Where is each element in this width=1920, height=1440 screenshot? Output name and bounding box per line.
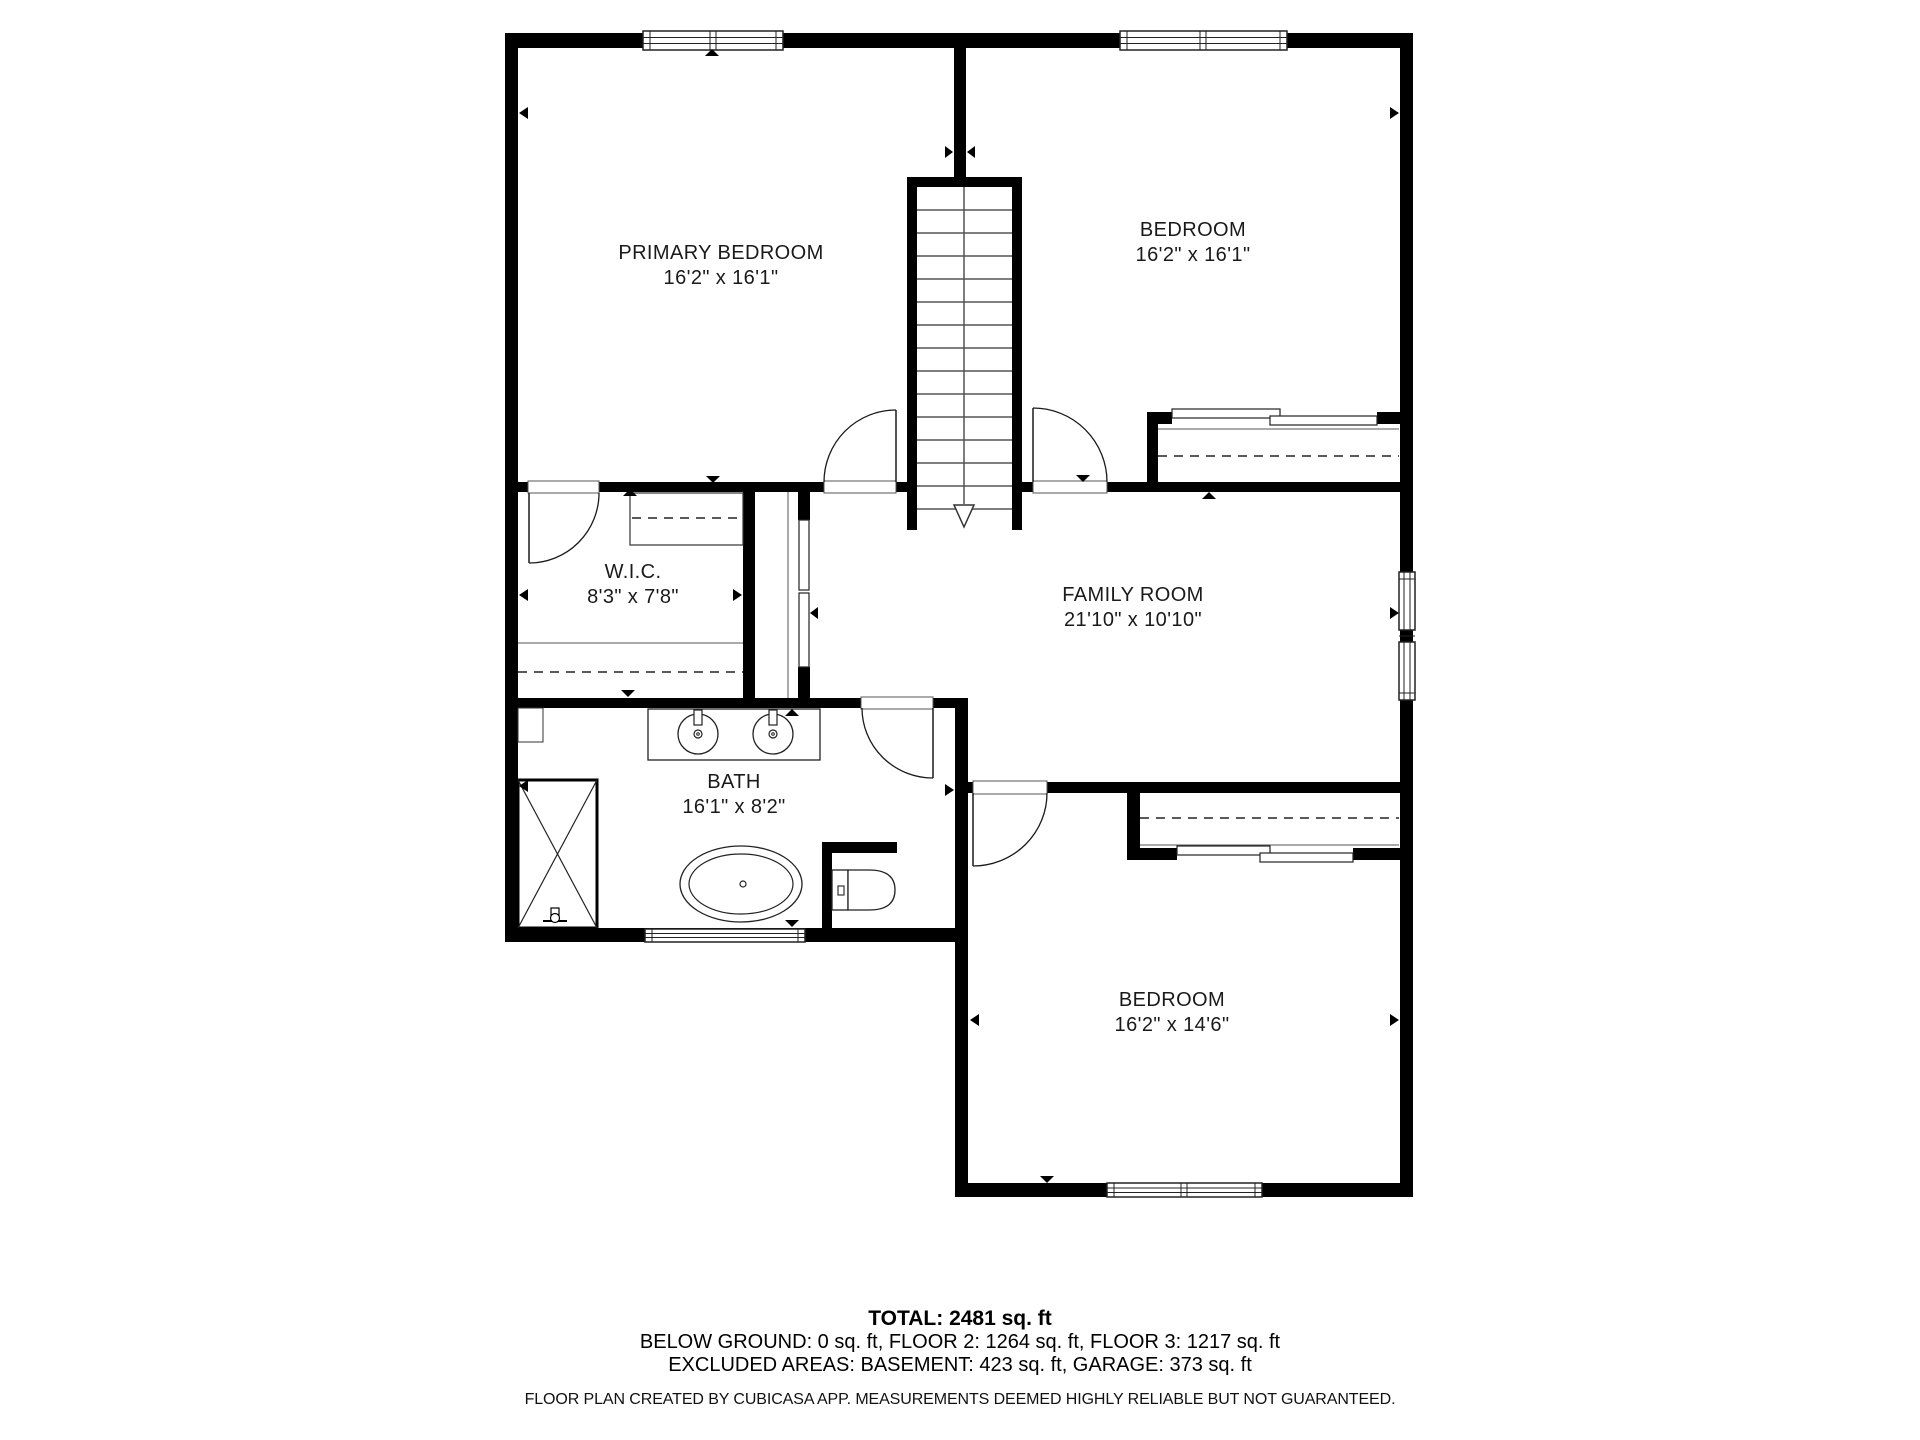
drain-icon <box>697 733 700 736</box>
floor-plan-drawing <box>0 0 1920 1440</box>
vanity-double-sink-icon <box>648 709 820 760</box>
wall-closet-br-front-right <box>1353 848 1401 860</box>
marker-icon <box>945 784 954 796</box>
window-bath-bottom <box>645 929 805 942</box>
marker-icon <box>1202 492 1216 499</box>
wall-niche <box>518 708 543 742</box>
marker-icon <box>1390 1014 1399 1026</box>
marker-icon <box>519 107 528 119</box>
marker-icon <box>1040 1176 1054 1183</box>
room-label-bedroom-bottom: BEDROOM 16'2" x 14'6" <box>1115 988 1230 1038</box>
room-dimensions: 16'2" x 16'1" <box>618 266 823 291</box>
faucet-icon <box>694 710 702 725</box>
flush-button <box>838 886 844 895</box>
window-bedroom-top <box>1120 31 1287 50</box>
window-bedroom-bottom <box>1107 1183 1262 1197</box>
stairs-icon <box>917 187 1012 527</box>
door-primary-bedroom <box>824 410 896 493</box>
interior-walls <box>505 47 1401 930</box>
drain-icon <box>772 733 775 736</box>
marker-icon <box>1390 607 1399 619</box>
room-name: FAMILY ROOM <box>1062 583 1203 608</box>
room-label-bath: BATH 16'1" x 8'2" <box>682 770 785 820</box>
marker-icon <box>519 589 528 601</box>
marker-icon <box>1390 107 1399 119</box>
total-area: TOTAL: 2481 sq. ft <box>640 1306 1280 1331</box>
room-dimensions: 21'10" x 10'10" <box>1062 608 1203 633</box>
room-dimensions: 8'3" x 7'8" <box>587 585 679 610</box>
door-bedroom-top <box>1033 408 1107 493</box>
floor-areas: BELOW GROUND: 0 sq. ft, FLOOR 2: 1264 sq… <box>640 1331 1280 1354</box>
window-family-room-upper <box>1399 572 1415 630</box>
sliding-door-panel <box>1172 409 1280 418</box>
drain-icon <box>740 881 746 887</box>
room-name: BEDROOM <box>1115 988 1230 1013</box>
wall-wic-right <box>743 482 755 708</box>
wall-stairs-left <box>907 177 917 530</box>
marker-icon <box>945 146 953 158</box>
room-label-bedroom-top: BEDROOM 16'2" x 16'1" <box>1136 218 1251 268</box>
faucet-icon <box>769 710 777 725</box>
marker-icon <box>970 1014 979 1026</box>
shower-icon <box>518 780 597 928</box>
area-summary: TOTAL: 2481 sq. ft BELOW GROUND: 0 sq. f… <box>640 1306 1280 1377</box>
wall-closet-tr-front-left <box>1147 412 1172 424</box>
room-label-family-room: FAMILY ROOM 21'10" x 10'10" <box>1062 583 1203 633</box>
bathtub-icon <box>680 846 802 922</box>
door-wic <box>528 481 599 563</box>
toilet-icon <box>832 870 895 910</box>
disclaimer: FLOOR PLAN CREATED BY CUBICASA APP. MEAS… <box>525 1391 1396 1409</box>
wall-closet-br-front-left <box>1140 848 1177 860</box>
room-dimensions: 16'2" x 14'6" <box>1115 1013 1230 1038</box>
wall-between-bedrooms <box>954 47 966 177</box>
window-family-room-lower <box>1399 636 1415 700</box>
door-bedroom-bottom <box>973 781 1047 866</box>
marker-icon <box>785 920 799 927</box>
marker-icon <box>810 607 818 619</box>
wall-toilet-horizontal <box>822 842 897 853</box>
sliding-door-panel <box>1270 416 1377 425</box>
room-name: W.I.C. <box>587 560 679 585</box>
sliding-doors-hall-closet <box>788 492 809 698</box>
wall-bedroom-left <box>955 698 968 1197</box>
room-dimensions: 16'2" x 16'1" <box>1136 243 1251 268</box>
wall-closet-br-left <box>1127 793 1140 860</box>
sliding-door-panel <box>1260 853 1353 862</box>
room-label-wic: W.I.C. 8'3" x 7'8" <box>587 560 679 610</box>
marker-icon <box>967 146 975 158</box>
room-label-primary-bedroom: PRIMARY BEDROOM 16'2" x 16'1" <box>618 241 823 291</box>
windows <box>643 31 1415 1197</box>
sliding-door-panel <box>1177 846 1270 855</box>
excluded-areas: EXCLUDED AREAS: BASEMENT: 423 sq. ft, GA… <box>640 1354 1280 1377</box>
room-name: PRIMARY BEDROOM <box>618 241 823 266</box>
door-bath <box>861 697 933 778</box>
room-name: BEDROOM <box>1136 218 1251 243</box>
room-dimensions: 16'1" x 8'2" <box>682 795 785 820</box>
window-primary-bedroom-top <box>643 31 783 50</box>
closet-bedroom-top <box>1158 409 1399 456</box>
wall-stairs-right <box>1012 177 1022 530</box>
wall-stairs-top <box>907 177 1022 187</box>
wall-closet-tr-front-right <box>1377 412 1401 424</box>
floor-plan-page: PRIMARY BEDROOM 16'2" x 16'1" BEDROOM 16… <box>0 0 1920 1440</box>
stairs-down-arrow-icon <box>954 505 974 527</box>
marker-icon <box>733 589 742 601</box>
room-name: BATH <box>682 770 785 795</box>
wall-toilet-vertical <box>822 842 832 930</box>
wall-hall-closet-stub-bottom <box>798 667 810 698</box>
exterior-walls <box>505 33 1413 1197</box>
wic-wardrobe-box <box>630 493 743 545</box>
marker-icon <box>621 690 635 697</box>
marker-icon <box>706 476 720 483</box>
wall-hall-closet-stub-top <box>798 492 810 520</box>
toilet-bowl <box>848 870 895 910</box>
